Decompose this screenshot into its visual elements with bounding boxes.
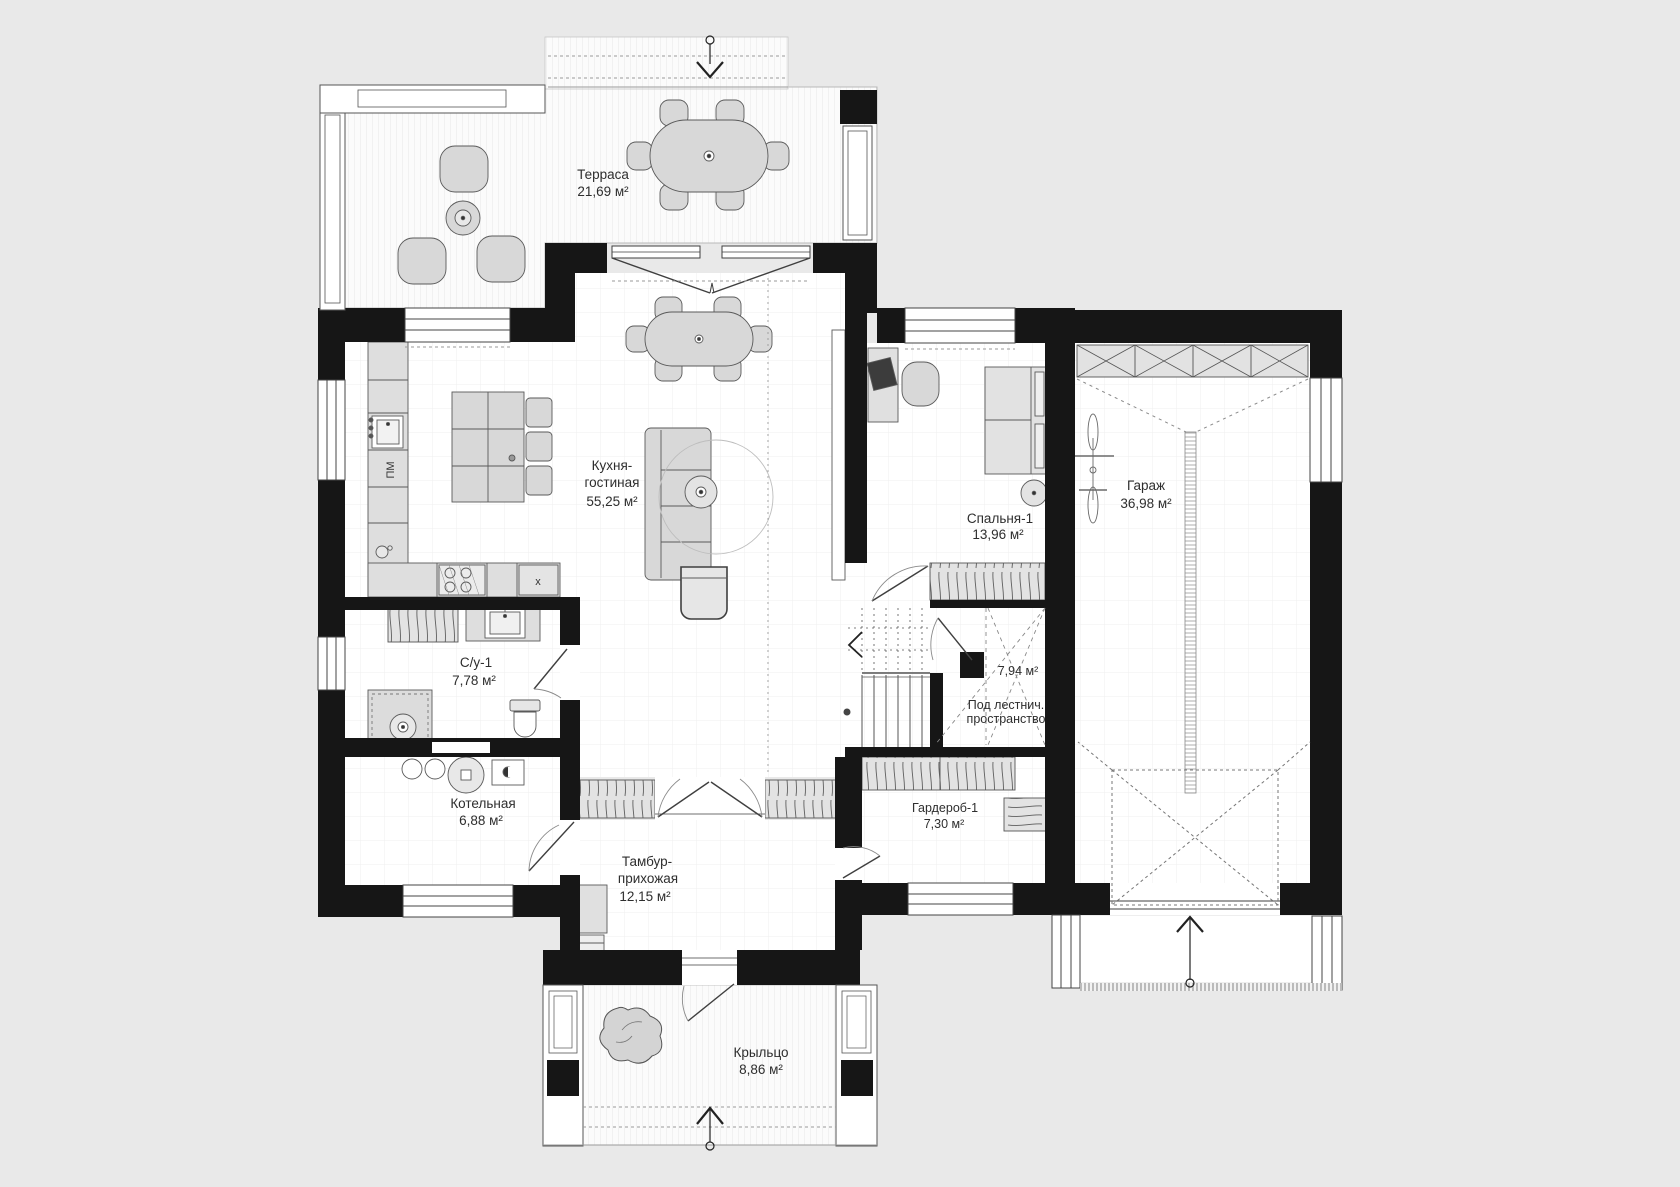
label-kitchen-name2: гостиная: [585, 475, 640, 490]
label-boiler-area: 6,88 м²: [459, 813, 503, 828]
wall-niche: [432, 742, 490, 753]
pouf: [1021, 480, 1047, 506]
kitchen-counter-bottom: [368, 563, 560, 597]
stove: [439, 565, 485, 595]
kitchen-window: [405, 308, 510, 342]
entry-cabinet: [577, 885, 607, 951]
wardrobe-closet-top: [862, 757, 1015, 790]
apron-window-left: [1052, 915, 1080, 988]
label-porch-name: Крыльцо: [733, 1045, 788, 1060]
apron-edge-hatch: [1080, 983, 1342, 991]
terrace-steps-floor: [545, 37, 788, 89]
bedroom-window: [905, 308, 1015, 343]
label-terrace-name: Терраса: [577, 167, 629, 182]
stairs-newel: [844, 709, 851, 716]
hall-closet-left: [578, 780, 655, 818]
drain-channel: [1185, 432, 1196, 793]
desk-chair: [902, 362, 939, 406]
label-porch-area: 8,86 м²: [739, 1062, 783, 1077]
wardrobe-window: [908, 883, 1013, 915]
label-vestibule-name: Тамбур-: [622, 854, 672, 869]
label-understairs-area: 7,94 м²: [998, 664, 1039, 678]
apron-window-right: [1312, 916, 1342, 990]
left-window-kitchen: [318, 380, 345, 480]
label-bedroom-area: 13,96 м²: [972, 527, 1024, 542]
label-understairs-name: Под лестнич.: [968, 698, 1045, 712]
label-wardrobe-area: 7,30 м²: [924, 817, 965, 831]
hall-closet-right: [765, 780, 843, 818]
pillar-core-right: [841, 1060, 873, 1096]
label-vestibule-area: 12,15 м²: [619, 889, 671, 904]
floor-lamp: [685, 476, 717, 508]
wardrobe-closet-right: [1004, 798, 1052, 831]
label-garage-area: 36,98 м²: [1120, 496, 1172, 511]
label-bath-name: С/у-1: [460, 655, 492, 670]
label-kitchen-name: Кухня-: [592, 458, 633, 473]
left-window-bath: [318, 637, 345, 690]
label-bedroom-name: Спальня-1: [967, 511, 1033, 526]
armchair: [681, 567, 727, 619]
tv-unit: [832, 330, 845, 580]
bed: [985, 367, 1047, 474]
label-kitchen-area: 55,25 м²: [586, 494, 638, 509]
label-understairs-name2: пространство: [967, 712, 1046, 726]
floor-plan-canvas: Терраса 21,69 м² Кухня- гостиная 55,25 м…: [0, 0, 1680, 1187]
terrace-planter: [843, 126, 872, 240]
label-bath-area: 7,78 м²: [452, 673, 496, 688]
label-stove-marker: x: [535, 576, 541, 588]
label-dishwasher: ПМ: [385, 461, 397, 478]
garage-window: [1310, 378, 1342, 482]
laundry-unit: [388, 606, 458, 642]
kitchen-island: [452, 392, 552, 502]
garage-door: [1110, 883, 1280, 915]
bedroom-wardrobe: [930, 563, 1045, 600]
label-terrace-area: 21,69 м²: [577, 184, 629, 199]
label-boiler-name: Котельная: [450, 796, 515, 811]
pillar-core-left: [547, 1060, 579, 1096]
floor-plan-svg: Терраса 21,69 м² Кухня- гостиная 55,25 м…: [0, 0, 1680, 1187]
garage-shelving: [1077, 345, 1308, 377]
vestibule-double-door: [655, 777, 765, 820]
label-vestibule-name2: прихожая: [618, 871, 678, 886]
boiler-window: [403, 885, 513, 917]
label-garage-name: Гараж: [1127, 478, 1165, 493]
label-wardrobe-name: Гардероб-1: [912, 801, 978, 815]
